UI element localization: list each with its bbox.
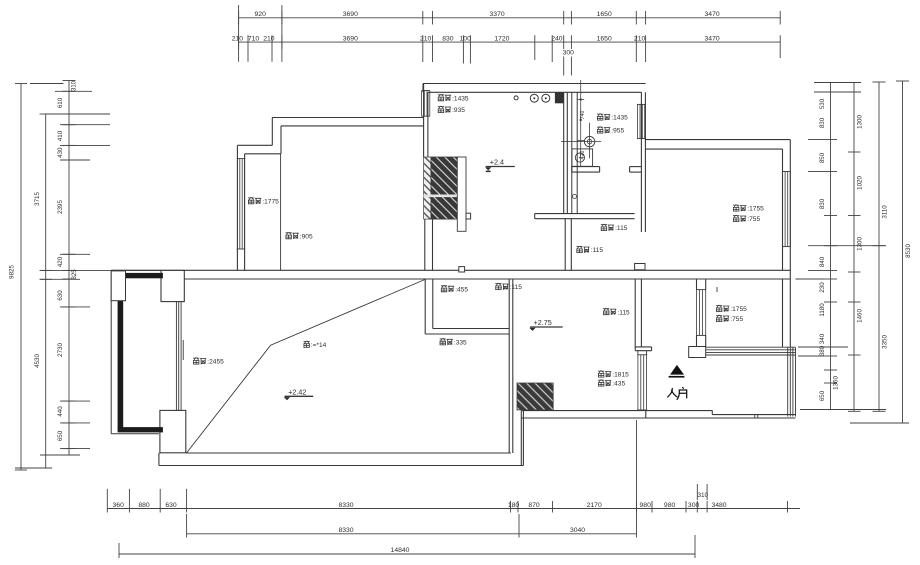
svg-text:8530: 8530: [905, 244, 912, 258]
svg-text:3040: 3040: [570, 527, 585, 534]
svg-text:830: 830: [819, 198, 826, 209]
svg-text::115: :115: [617, 309, 630, 316]
svg-text::335: :335: [454, 340, 467, 347]
svg-text::935: :935: [452, 107, 465, 114]
svg-text::1775: :1775: [262, 199, 279, 206]
svg-text::1755: :1755: [747, 206, 764, 213]
svg-text:300: 300: [563, 50, 575, 57]
svg-text::955: :955: [611, 128, 624, 135]
svg-text:610: 610: [57, 97, 64, 108]
svg-text::455: :455: [455, 286, 468, 293]
svg-text:3110: 3110: [882, 205, 889, 219]
svg-text::435: :435: [612, 381, 625, 388]
svg-text::115: :115: [591, 247, 604, 254]
svg-text:1720: 1720: [494, 36, 509, 43]
svg-text:1300: 1300: [857, 237, 864, 251]
svg-text:1650: 1650: [597, 11, 612, 18]
svg-text:3480: 3480: [711, 502, 726, 509]
svg-text:740: 740: [580, 111, 586, 120]
svg-text:840: 840: [819, 256, 826, 267]
svg-text:1360: 1360: [833, 376, 840, 390]
svg-text:430: 430: [57, 147, 64, 158]
svg-text:1180: 1180: [819, 303, 826, 317]
svg-text::1435: :1435: [452, 95, 469, 102]
svg-text:3715: 3715: [34, 192, 41, 206]
svg-text:1650: 1650: [597, 36, 612, 43]
svg-text:880: 880: [138, 502, 150, 509]
svg-text:410: 410: [57, 130, 64, 141]
svg-text:340: 340: [819, 333, 826, 344]
svg-text:180: 180: [508, 502, 520, 509]
svg-text:3370: 3370: [490, 11, 505, 18]
svg-text::1435: :1435: [611, 115, 628, 122]
svg-text:980: 980: [640, 502, 652, 509]
svg-text:360: 360: [113, 502, 125, 509]
svg-text:920: 920: [255, 11, 267, 18]
svg-text::115: :115: [510, 284, 523, 291]
svg-text:9825: 9825: [9, 265, 16, 279]
svg-text::115: :115: [615, 225, 628, 232]
svg-text:8330: 8330: [338, 502, 353, 509]
svg-text:3690: 3690: [343, 11, 358, 18]
svg-text:830: 830: [819, 117, 826, 128]
svg-text:230: 230: [819, 282, 826, 293]
svg-text:1460: 1460: [857, 309, 864, 323]
svg-text:420: 420: [57, 256, 64, 267]
svg-text:3470: 3470: [705, 11, 720, 18]
svg-text:210: 210: [634, 36, 646, 43]
svg-text:420: 420: [580, 151, 586, 160]
svg-text:+2.4: +2.4: [490, 158, 504, 167]
svg-text:4530: 4530: [34, 354, 41, 368]
svg-text:2170: 2170: [587, 502, 602, 509]
svg-text:240: 240: [551, 36, 563, 43]
svg-text::1755: :1755: [730, 306, 747, 313]
svg-text:2730: 2730: [57, 343, 64, 357]
svg-text:210: 210: [420, 36, 432, 43]
svg-text:300: 300: [688, 502, 700, 509]
svg-text::755: :755: [747, 216, 760, 223]
svg-text:630: 630: [57, 290, 64, 301]
svg-text:+2.42: +2.42: [288, 387, 306, 396]
svg-text::755: :755: [730, 316, 743, 323]
svg-text::2455: :2455: [207, 359, 224, 366]
svg-text::1815: :1815: [612, 372, 629, 379]
svg-text:830: 830: [442, 36, 454, 43]
svg-text:310: 310: [72, 80, 78, 91]
svg-text:1020: 1020: [857, 176, 864, 190]
svg-text:3690: 3690: [343, 36, 358, 43]
svg-text:710: 710: [248, 36, 260, 43]
svg-text:630: 630: [165, 502, 177, 509]
svg-text:2395: 2395: [57, 200, 64, 214]
svg-text:440: 440: [57, 406, 64, 417]
svg-text:210: 210: [232, 36, 244, 43]
svg-text:14840: 14840: [391, 547, 410, 554]
svg-text:8330: 8330: [338, 527, 353, 534]
svg-text:100: 100: [460, 36, 472, 43]
svg-text:650: 650: [57, 430, 64, 441]
svg-text:870: 870: [528, 502, 540, 509]
svg-text:650: 650: [819, 390, 826, 401]
svg-text::=*14: :=*14: [311, 342, 327, 349]
svg-text:530: 530: [819, 98, 826, 109]
svg-text:+2.75: +2.75: [534, 318, 552, 327]
svg-text::905: :905: [300, 233, 313, 240]
svg-text:3470: 3470: [705, 36, 720, 43]
svg-text:3350: 3350: [882, 335, 889, 349]
svg-text:1300: 1300: [857, 115, 864, 129]
svg-text:850: 850: [819, 152, 826, 163]
svg-text:980: 980: [664, 502, 676, 509]
svg-text:210: 210: [263, 36, 275, 43]
